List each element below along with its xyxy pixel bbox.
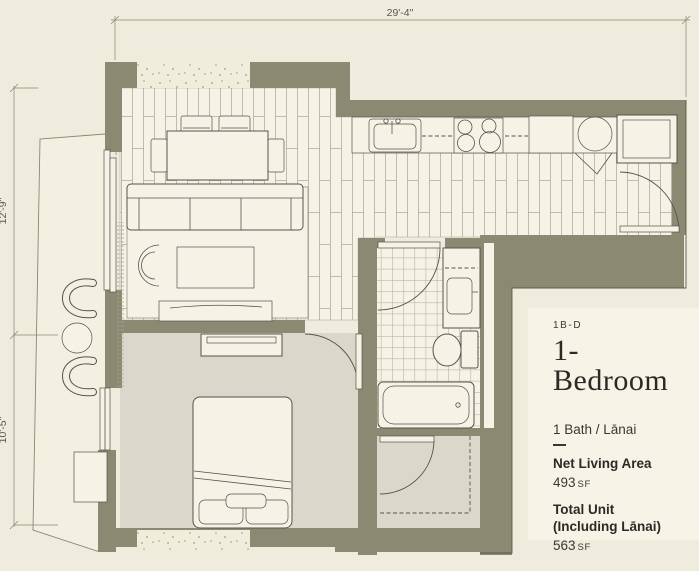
unit-info-panel: 1B-D 1-Bedroom 1 Bath / Lānai Net Living…: [528, 308, 699, 540]
screen-track: [117, 222, 124, 388]
window-bottom: [137, 530, 250, 550]
dining-table: [167, 131, 268, 180]
carpet-floor-closet: [377, 436, 480, 528]
unit-features: 1 Bath / Lānai: [553, 422, 693, 437]
net-living-sf-unit: SF: [578, 479, 591, 490]
total-unit-sf-unit: SF: [578, 542, 591, 553]
refrigerator: [617, 115, 677, 163]
sliding-glass-door: [104, 150, 116, 292]
dimension-label-width: 29'-4": [387, 7, 414, 19]
bed: [193, 397, 292, 528]
kitchen-sink: [369, 119, 421, 152]
dining-chair: [219, 116, 250, 133]
dining-chair: [268, 139, 284, 172]
cooktop: [454, 118, 503, 153]
total-unit-label-line2: (Including Lānai): [553, 519, 693, 536]
unit-code: 1B-D: [553, 320, 693, 331]
bathtub: [378, 382, 474, 428]
dresser-tv-console: [201, 334, 282, 356]
dimension-label-lower: 10'-5": [0, 416, 9, 443]
total-unit-value: 563SF: [553, 538, 693, 553]
dimension-left-upper: 12'-9": [0, 84, 38, 337]
dishwasher: [529, 116, 573, 153]
sofa: [127, 184, 303, 230]
net-living-sf-number: 493: [553, 475, 576, 490]
divider-dash: [553, 444, 566, 446]
pillow: [226, 494, 266, 508]
net-living-area-label: Net Living Area: [553, 456, 693, 473]
lanai-table: [62, 323, 92, 353]
total-unit-sf-number: 563: [553, 538, 576, 553]
bathroom-vanity: [443, 248, 480, 328]
total-unit-label-line1: Total Unit: [553, 502, 693, 519]
dining-chair: [151, 139, 167, 172]
shaft-gap: [484, 243, 494, 428]
dimension-label-upper: 12'-9": [0, 197, 9, 224]
coffee-table: [177, 247, 254, 288]
unit-name: 1-Bedroom: [553, 336, 693, 396]
bedroom-window-left: [100, 388, 110, 450]
window-top: [137, 62, 250, 88]
net-living-area-value: 493SF: [553, 475, 693, 490]
media-console: [159, 301, 272, 321]
ac-unit: [74, 452, 107, 502]
dining-chair: [181, 116, 212, 133]
